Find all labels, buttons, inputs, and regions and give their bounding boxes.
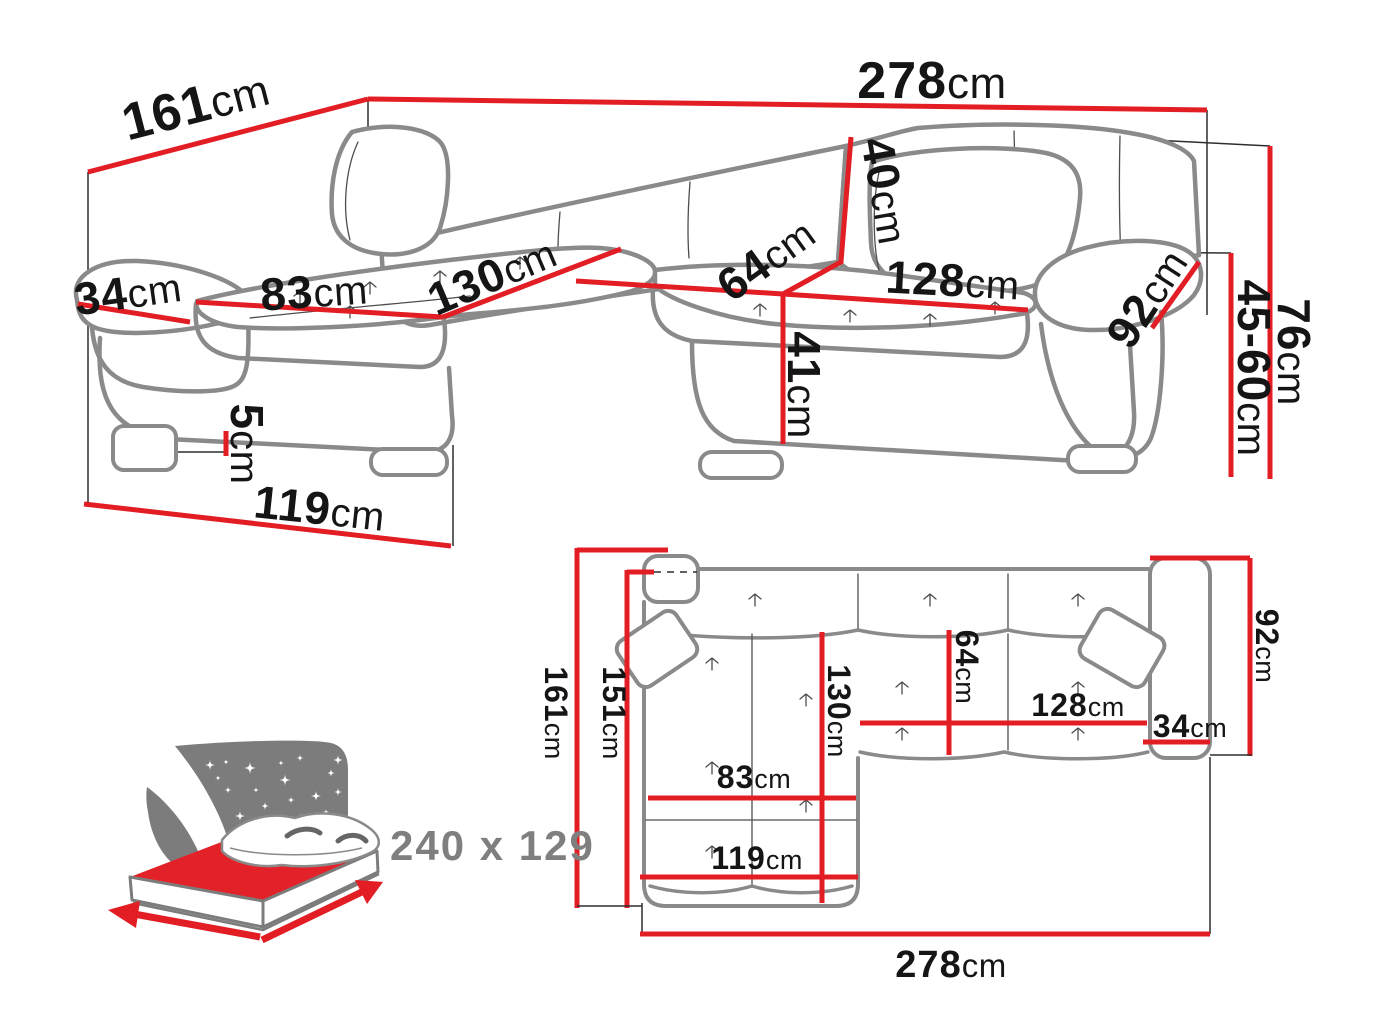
sofa-leg-back-left [113,426,176,470]
tuft-mark [800,694,812,706]
plan-left-armrest [644,556,698,602]
sleeping-area-icon: 240 x 129 [108,741,595,940]
dim-label-5: 5cm [221,404,273,485]
plan-label-161: 161cm [538,666,574,759]
plan-label-64: 64cm [949,630,985,705]
tuft-mark [1072,594,1084,606]
tuft-mark [749,594,761,606]
plan-label-92: 92cm [1249,609,1285,684]
plan-label-83: 83cm [717,759,792,795]
tuft-mark [924,594,936,606]
plan-leader-armrest [1210,755,1252,934]
star-icon [198,797,205,804]
sofa-plan-outline [613,556,1210,906]
tuft-mark [800,800,812,812]
bed-blanket [222,813,379,866]
plan-backrest-edge [646,630,1148,638]
plan-label-128: 128cm [1031,687,1124,723]
tuft-mark [896,728,908,740]
star-icon [187,812,193,818]
dim-label-41: 41cm [778,331,830,439]
furniture-dimension-diagram: 161cm 278cm 34cm 83cm 130cm 40cm 64cm 12… [0,0,1373,1030]
plan-label-278: 278cm [895,944,1006,986]
tuft-mark [1072,728,1084,740]
plan-label-151: 151cm [596,666,632,759]
dim-label-278: 278cm [857,52,1006,110]
plan-label-34: 34cm [1153,708,1228,744]
bed-arrow-left-head [108,901,140,928]
dim-label-161: 161cm [116,59,275,153]
dim-label-119: 119cm [252,475,388,540]
dim-label-83: 83cm [258,261,369,320]
sofa-leg-front-right [1068,446,1136,472]
plan-leader-bottom-left [577,903,642,934]
tuft-mark [706,658,718,670]
diagram-canvas: 161cm 278cm 34cm 83cm 130cm 40cm 64cm 12… [0,0,1373,1030]
dim-label-45-60: 45-60cm [1228,280,1280,457]
dim-line-278 [368,99,1207,110]
sofa-leg-front-left [371,449,447,475]
plan-label-130: 130cm [821,664,857,757]
tuft-mark [896,682,908,694]
sleeping-dimensions-label: 240 x 129 [390,822,595,869]
top-view: 161cm 151cm 130cm 64cm 83cm 128cm 34cm 9… [538,548,1285,986]
main-front-face [692,342,1134,461]
sofa-leg-front-mid [700,452,782,478]
star-icon [208,824,216,832]
perspective-view: 161cm 278cm 34cm 83cm 130cm 40cm 64cm 12… [71,52,1320,546]
plan-main-front-edge [860,752,1148,759]
plan-label-119: 119cm [711,840,803,876]
